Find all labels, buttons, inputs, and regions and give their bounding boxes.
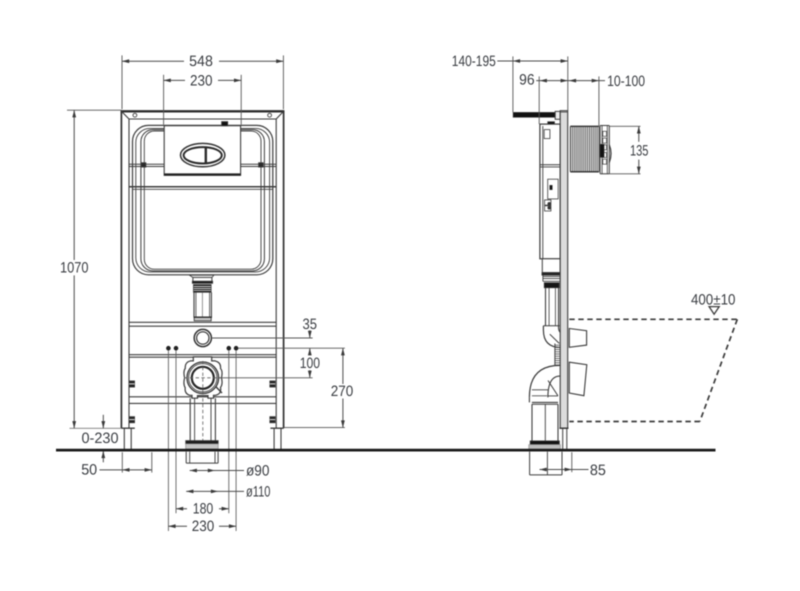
svg-text:ø110: ø110 [246, 483, 271, 500]
svg-text:180: 180 [193, 501, 214, 518]
svg-text:50: 50 [81, 462, 97, 479]
svg-text:1070: 1070 [60, 259, 89, 276]
svg-text:0-230: 0-230 [82, 430, 119, 447]
svg-text:100: 100 [300, 355, 320, 372]
svg-text:270: 270 [331, 383, 354, 400]
svg-text:548: 548 [189, 53, 213, 70]
svg-text:230: 230 [190, 72, 213, 89]
svg-text:230: 230 [192, 518, 215, 535]
svg-text:400±10: 400±10 [691, 292, 736, 309]
svg-text:85: 85 [590, 462, 606, 479]
svg-text:140-195: 140-195 [452, 53, 496, 70]
svg-text:10-100: 10-100 [607, 73, 645, 90]
svg-text:96: 96 [519, 71, 535, 88]
svg-text:135: 135 [630, 143, 649, 160]
svg-text:ø90: ø90 [246, 463, 270, 480]
svg-text:35: 35 [302, 316, 317, 333]
